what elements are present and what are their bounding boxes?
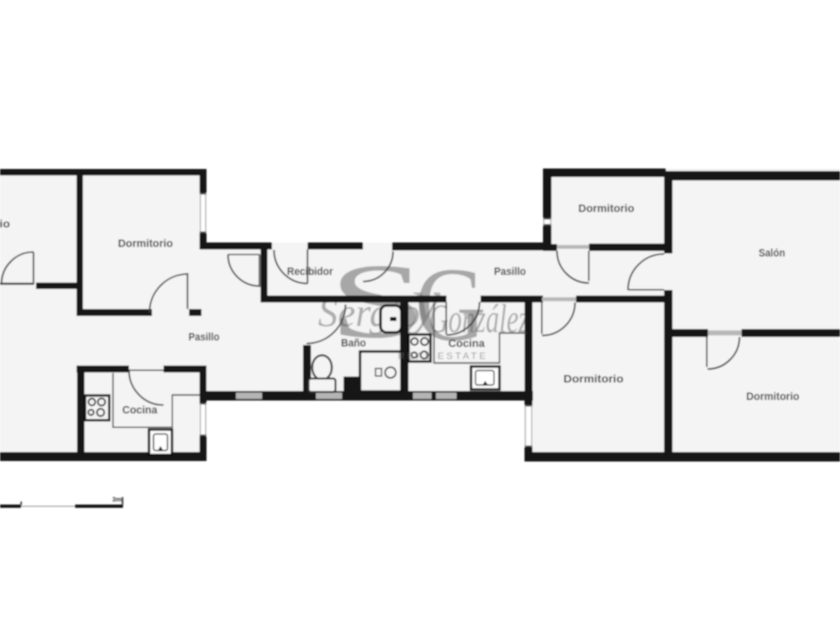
svg-text:Pasillo: Pasillo bbox=[189, 331, 220, 343]
svg-text:Recibidor: Recibidor bbox=[287, 266, 334, 278]
svg-text:Dormitorio: Dormitorio bbox=[118, 238, 173, 250]
svg-text:Salón: Salón bbox=[759, 248, 786, 260]
svg-text:Dormitorio: Dormitorio bbox=[746, 391, 799, 403]
svg-text:Pasillo: Pasillo bbox=[494, 266, 526, 278]
svg-text:Cocina: Cocina bbox=[122, 405, 158, 417]
svg-text:REAL ESTATE: REAL ESTATE bbox=[398, 351, 488, 362]
svg-text:Cocina: Cocina bbox=[448, 338, 486, 350]
svg-text:Dormitorio: Dormitorio bbox=[564, 374, 624, 386]
svg-text:Dormitorio: Dormitorio bbox=[0, 219, 10, 231]
svg-text:Baño: Baño bbox=[341, 338, 366, 350]
svg-text:3m: 3m bbox=[112, 497, 122, 504]
svg-text:Dormitorio: Dormitorio bbox=[578, 203, 634, 215]
